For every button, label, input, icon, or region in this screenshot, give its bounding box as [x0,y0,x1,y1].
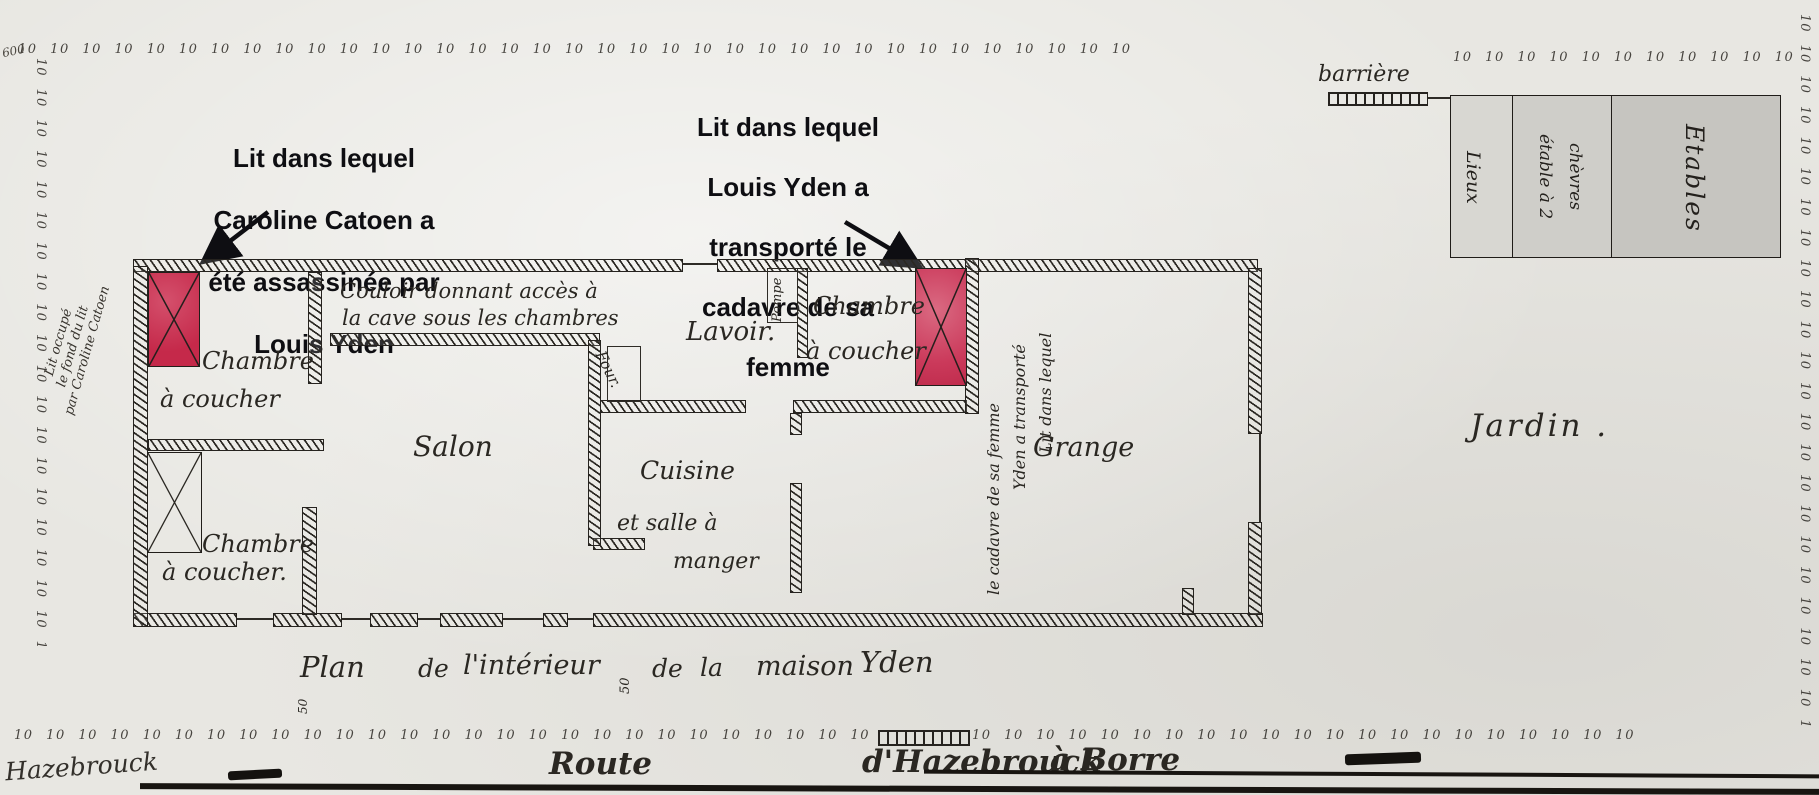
road-line-lower [140,783,1819,795]
bed-cross [149,273,199,366]
door-sill-1 [237,618,273,620]
hedge-marks-top-right: 10 10 10 10 10 10 10 10 10 10 10 10 10 1… [1453,50,1803,76]
plan-scan: 10 10 10 10 10 10 10 10 10 10 10 10 10 1… [0,0,1819,795]
room-label-bedroom1-line2: à coucher [160,385,280,413]
wall-bedrooms-salon-lower [302,507,317,615]
caption-word-interieur: l'intérieur [463,650,600,681]
stable-label-chevres-line1: étable à 2 [1530,102,1560,252]
wall-bottom-5 [543,613,568,627]
wall-left [133,266,148,627]
caption-measure: 50 [618,632,633,694]
room-label-bedroom2-line2: à coucher. [162,558,287,586]
wall-bottom-6 [593,613,1263,627]
caption-word-plan: Plan [300,650,365,684]
caption-word-yden: Yden [860,645,934,679]
room-label-cuisine-line3: manger [673,549,759,574]
script-note-bed2-line2: Yden a transporté [1010,250,1029,490]
bed-cross [916,269,966,385]
stable-label-chevres-line2: chèvres [1560,102,1590,252]
bed-unmarked [147,452,202,553]
wall-bottom-4 [440,613,503,627]
annotation-bed1-line2: Caroline Catoen a [192,205,456,236]
caption-word-maison: maison [756,651,854,682]
stable-label-chevres: étable à 2 chèvres [1530,102,1590,252]
wall-grange-door-jamb [1182,588,1194,615]
bed-cadavre-transporte [915,268,967,386]
road-town-hazebrouck: Hazebrouck [4,747,159,787]
wall-bottom-1 [133,613,237,627]
wall-kitchen-grange-stub [790,413,802,435]
door-sill-3 [418,618,440,620]
wall-mid-divider-b [793,400,967,413]
bed-cross [148,453,201,552]
room-label-bedroom1-line1: Chambre [202,347,314,375]
room-label-cuisine-line1: Cuisine [640,456,735,485]
room-label-midbedroom-line1: Chambre [813,292,925,320]
room-label-lavoir: Lavoir. [686,317,775,347]
room-label-jardin: Jardin . [1470,408,1609,444]
wall-bedroom-divider [148,439,324,451]
room-label-cuisine-line2: et salle à [617,511,717,536]
stable-label-etables: Etables [1680,108,1709,248]
script-note-bed2-line3: le cadavre de sa femme [984,255,1003,595]
room-label-corridor-line2: la cave sous les chambres [342,306,619,330]
room-label-salon: Salon [413,430,493,463]
door-sill-front [683,263,717,265]
road-measure: 50 [296,688,310,714]
wall-bottom-3 [370,613,418,627]
wall-kitchen-grange-lower [790,483,802,593]
annotation-bed2-line3: transporté le [694,232,882,262]
wall-corridor-bottom [330,333,600,346]
annotation-bed2-line1: Lit dans lequel [694,112,882,142]
barriere-tick [1427,97,1452,99]
hedge-marks-top-left: 10 10 10 10 10 10 10 10 10 10 10 10 10 1… [18,42,1133,68]
wall-grange-right-upper [1248,268,1262,434]
label-barriere: barrière [1318,62,1410,87]
door-sill-4 [503,618,543,620]
door-sill-5 [568,618,593,620]
room-label-corridor-line1: Couloir donnant accès à [340,279,598,303]
wall-bottom-2 [273,613,342,627]
hedge-marks-right: 10 10 10 10 10 10 10 10 10 10 10 10 10 1… [1786,14,1812,729]
caption-word-de1: de [418,654,449,683]
room-label-midbedroom-line2: à coucher [806,337,926,365]
door-line-grange-right [1259,434,1261,523]
hedge-marks-left: 10 10 10 10 10 10 10 10 10 10 10 10 10 1… [24,58,48,646]
caption-word-la: la [700,653,723,682]
stable-label-lieux: Lieux [1462,110,1484,245]
annotation-bed1-line1: Lit dans lequel [192,143,456,174]
script-note-bed2-line1: Lit dans lequel [1036,243,1055,453]
room-label-pompe: Pompe [770,270,785,322]
road-dash-left [228,769,282,781]
road-word-route: Route [549,746,652,782]
wall-right-of-bed2 [965,258,979,414]
door-sill-2 [342,618,370,620]
gate-ladder-top [1328,92,1428,106]
wall-top-left [133,259,683,272]
road-dash-right [1345,752,1421,766]
annotation-bed2-line2: Louis Yden a [694,172,882,202]
caption-word-de2: de [652,654,683,683]
bed-caroline-catoen [148,272,200,367]
wall-grange-right-lower [1248,522,1262,615]
room-label-bedroom2-line1: Chambre [202,530,314,558]
